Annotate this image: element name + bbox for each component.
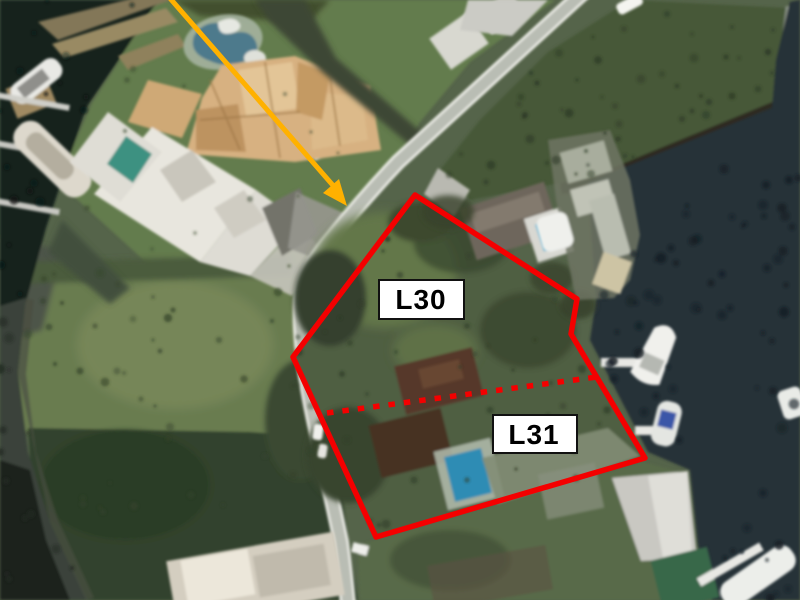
svg-text:L30: L30	[395, 284, 446, 315]
svg-text:L31: L31	[508, 419, 559, 450]
